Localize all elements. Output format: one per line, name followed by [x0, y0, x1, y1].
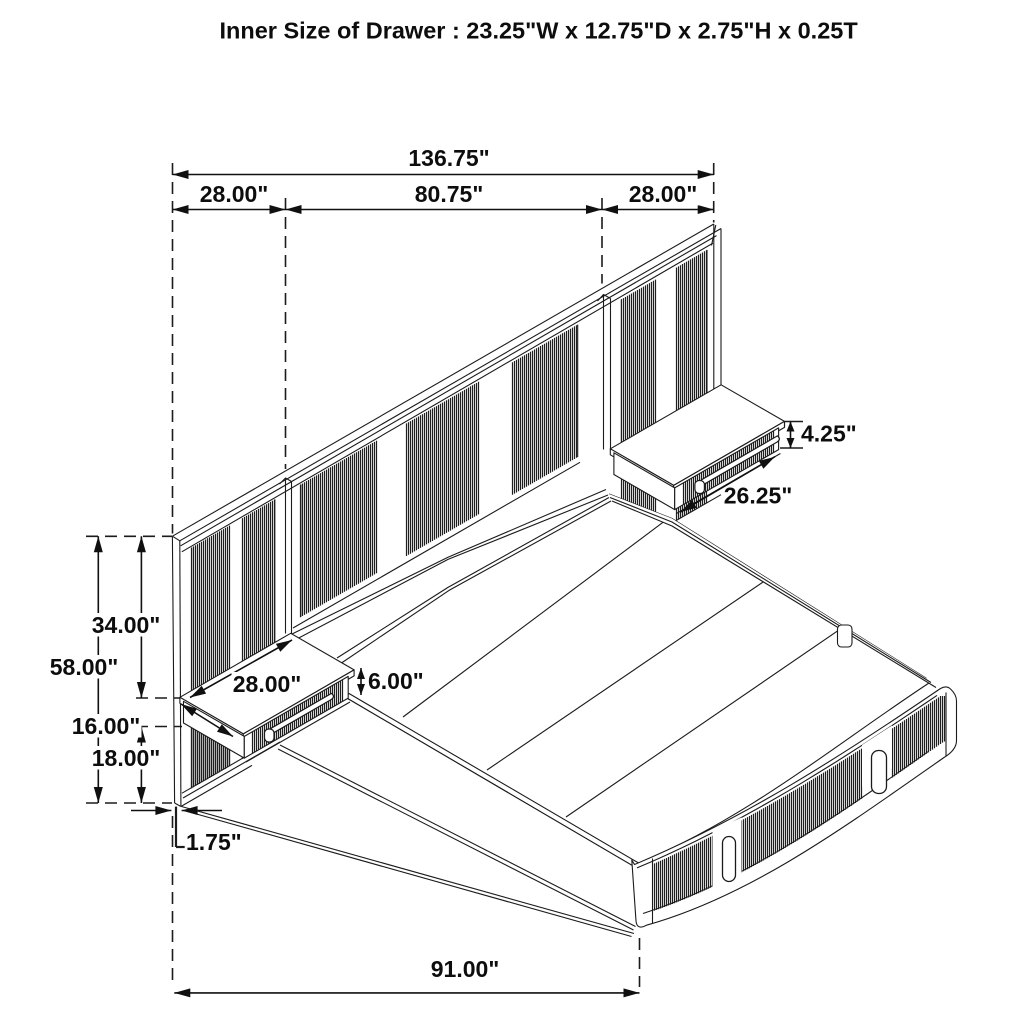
- svg-text:Inner Size of Drawer : 23.25"W: Inner Size of Drawer : 23.25"W x 12.75"D…: [220, 18, 859, 44]
- svg-text:18.00": 18.00": [92, 745, 160, 771]
- svg-text:28.00": 28.00": [233, 671, 301, 697]
- svg-text:91.00": 91.00": [431, 956, 499, 982]
- svg-text:136.75": 136.75": [408, 145, 489, 171]
- svg-text:26.25": 26.25": [724, 483, 792, 509]
- svg-text:28.00": 28.00": [629, 181, 697, 207]
- svg-text:34.00": 34.00": [92, 612, 160, 638]
- svg-text:6.00": 6.00": [368, 668, 424, 694]
- svg-text:28.00": 28.00": [200, 181, 268, 207]
- svg-text:80.75": 80.75": [415, 181, 483, 207]
- svg-text:1.75": 1.75": [186, 829, 242, 855]
- svg-text:58.00": 58.00": [50, 654, 118, 680]
- svg-text:4.25": 4.25": [801, 421, 857, 447]
- svg-text:16.00": 16.00": [72, 713, 140, 739]
